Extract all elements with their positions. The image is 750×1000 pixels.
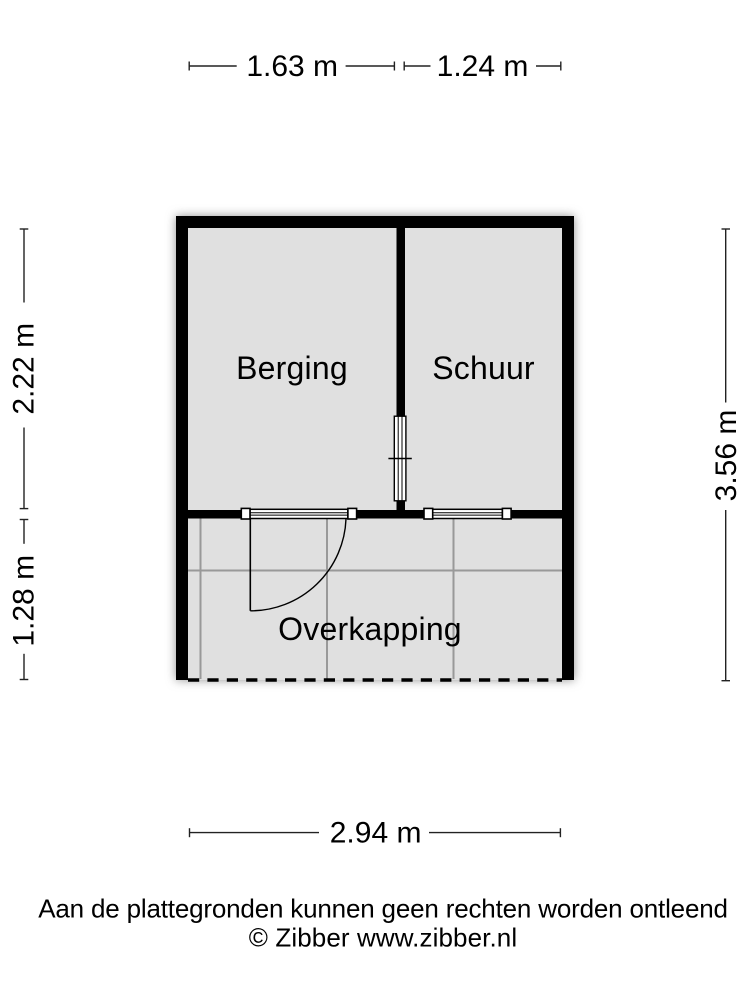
svg-text:Berging: Berging [236, 350, 348, 386]
svg-text:Overkapping: Overkapping [278, 611, 462, 647]
svg-text:© Zibber www.zibber.nl: © Zibber www.zibber.nl [249, 922, 517, 952]
svg-text:1.24 m: 1.24 m [437, 50, 529, 83]
svg-text:2.22 m: 2.22 m [8, 323, 41, 415]
svg-text:1.63 m: 1.63 m [246, 50, 338, 83]
svg-text:3.56 m: 3.56 m [710, 410, 743, 502]
svg-text:2.94 m: 2.94 m [330, 817, 422, 850]
svg-text:Schuur: Schuur [432, 350, 535, 386]
svg-text:Aan de plattegronden kunnen ge: Aan de plattegronden kunnen geen rechten… [38, 893, 728, 923]
svg-text:1.28 m: 1.28 m [8, 555, 41, 647]
